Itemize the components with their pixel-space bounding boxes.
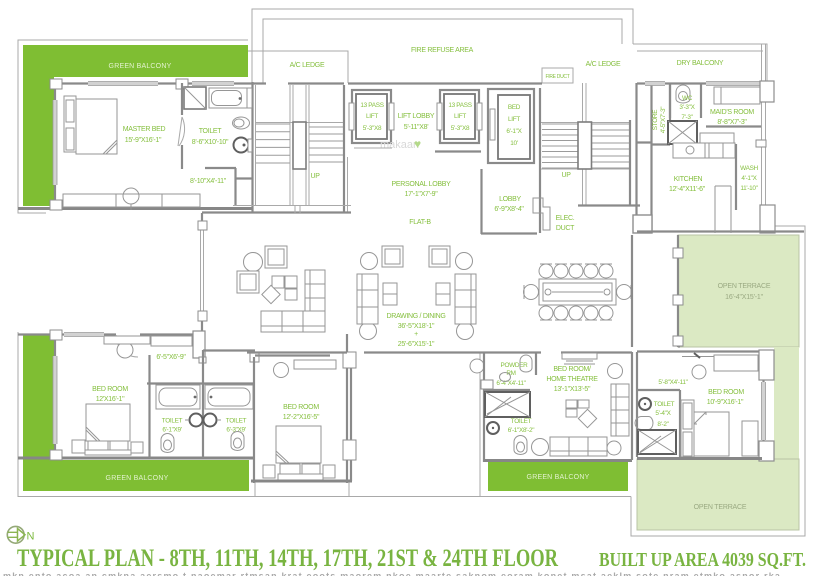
svg-text:8'-10"X4'-11": 8'-10"X4'-11" — [190, 178, 227, 185]
svg-text:PERSONAL LOBBY: PERSONAL LOBBY — [392, 181, 452, 188]
svg-text:FIRE REFUSE AREA: FIRE REFUSE AREA — [411, 47, 474, 54]
svg-text:mkn ento acoa an cmkna aersmo: mkn ento acoa an cmkna aersmo t naoemar … — [3, 571, 781, 576]
svg-text:LIFT: LIFT — [366, 113, 378, 120]
svg-text:10': 10' — [510, 140, 518, 147]
svg-text:WASH: WASH — [740, 165, 758, 172]
svg-text:5'-3"X8: 5'-3"X8 — [451, 125, 470, 132]
svg-text:10'-9"X16'-1": 10'-9"X16'-1" — [707, 399, 744, 406]
svg-text:5'-3"X8: 5'-3"X8 — [363, 125, 382, 132]
svg-text:DRY BALCONY: DRY BALCONY — [677, 60, 724, 67]
svg-text:ELEC.: ELEC. — [556, 215, 575, 222]
svg-text:6'-5"X6'-9": 6'-5"X6'-9" — [156, 354, 186, 361]
svg-text:TOILET: TOILET — [226, 418, 247, 425]
svg-text:BED: BED — [508, 104, 521, 111]
svg-text:5'-4"X: 5'-4"X — [655, 410, 671, 417]
svg-text:LIFT: LIFT — [508, 116, 520, 123]
svg-text:♥: ♥ — [414, 137, 421, 151]
svg-text:8'-2": 8'-2" — [657, 421, 668, 428]
svg-text:TYPICAL PLAN - 8TH, 11TH, 14TH: TYPICAL PLAN - 8TH, 11TH, 14TH, 17TH, 21… — [17, 543, 558, 572]
svg-text:A/C LEDGE: A/C LEDGE — [586, 61, 621, 68]
svg-text:BED ROOM: BED ROOM — [92, 386, 128, 393]
svg-text:36'-5"X18'-1": 36'-5"X18'-1" — [398, 323, 435, 330]
svg-text:LOBBY: LOBBY — [499, 196, 521, 203]
svg-text:13 PASS: 13 PASS — [360, 102, 383, 109]
svg-text:4'-1"X: 4'-1"X — [741, 175, 757, 182]
svg-text:GREEN BALCONY: GREEN BALCONY — [106, 475, 169, 482]
svg-text:TOILET: TOILET — [654, 401, 675, 408]
svg-text:STORE: STORE — [652, 110, 659, 130]
svg-text:LIFT LOBBY: LIFT LOBBY — [398, 113, 435, 120]
svg-text:BED ROOM: BED ROOM — [708, 389, 744, 396]
svg-text:OPEN TERRACE: OPEN TERRACE — [718, 283, 771, 290]
svg-text:5'-11"X8': 5'-11"X8' — [404, 124, 429, 131]
svg-text:BUILT UP AREA 4039 SQ.FT.: BUILT UP AREA 4039 SQ.FT. — [599, 549, 806, 571]
svg-text:TOILET: TOILET — [511, 418, 532, 425]
svg-text:POWDER: POWDER — [501, 362, 529, 369]
svg-text:6'-1"X8'-2": 6'-1"X8'-2" — [508, 427, 534, 434]
svg-text:DRAWING / DINING: DRAWING / DINING — [386, 313, 445, 320]
svg-text:A/C LEDGE: A/C LEDGE — [290, 62, 325, 69]
svg-text:6'-1"X: 6'-1"X — [506, 128, 522, 135]
svg-text:5'-8"X4'-11": 5'-8"X4'-11" — [658, 379, 687, 386]
svg-text:TOILET: TOILET — [162, 418, 183, 425]
svg-text:TOILET: TOILET — [199, 128, 223, 135]
svg-text:MAID'S ROOM: MAID'S ROOM — [710, 109, 754, 116]
svg-text:GREEN BALCONY: GREEN BALCONY — [109, 63, 172, 70]
svg-text:15'-9"X16'-1": 15'-9"X16'-1" — [125, 137, 162, 144]
svg-text:6'-4"X4'-11": 6'-4"X4'-11" — [496, 380, 525, 387]
svg-text:8'-8"X7'-3": 8'-8"X7'-3" — [717, 119, 747, 126]
svg-text:LIFT: LIFT — [454, 113, 466, 120]
svg-text:3'-3"X: 3'-3"X — [679, 104, 695, 111]
svg-text:13 PASS: 13 PASS — [448, 102, 471, 109]
svg-text:12'X16'-1": 12'X16'-1" — [96, 396, 125, 403]
svg-text:12'-2"X16'-5": 12'-2"X16'-5" — [283, 414, 320, 421]
svg-text:6'-9"X8'-4": 6'-9"X8'-4" — [494, 206, 524, 213]
svg-text:16'-4"X15'-1": 16'-4"X15'-1" — [725, 294, 763, 301]
svg-text:7'-3": 7'-3" — [681, 114, 692, 121]
svg-text:6'-1"X9': 6'-1"X9' — [162, 427, 181, 434]
svg-text:13'-1"X13'-5": 13'-1"X13'-5" — [554, 386, 591, 393]
svg-text:DUCT: DUCT — [556, 225, 575, 232]
svg-text:GREEN BALCONY: GREEN BALCONY — [527, 474, 590, 481]
svg-text:17'-1"X7'-9": 17'-1"X7'-9" — [405, 191, 439, 198]
svg-text:UP: UP — [310, 173, 320, 180]
svg-text:6'-3"X9': 6'-3"X9' — [226, 427, 245, 434]
svg-text:4'-5"X7'-3": 4'-5"X7'-3" — [660, 107, 667, 133]
svg-text:OPEN TERRACE: OPEN TERRACE — [694, 504, 747, 511]
svg-text:BED ROOM/: BED ROOM/ — [553, 366, 591, 373]
svg-text:FLAT-B: FLAT-B — [409, 219, 431, 226]
svg-text:8'-6"X10'-10": 8'-6"X10'-10" — [192, 139, 229, 146]
svg-text:FIRE DUCT: FIRE DUCT — [546, 74, 570, 80]
svg-text:12'-4"X11'-6": 12'-4"X11'-6" — [669, 186, 706, 193]
svg-text:BED ROOM: BED ROOM — [283, 404, 319, 411]
svg-text:WC: WC — [682, 95, 693, 102]
svg-text:N: N — [27, 531, 35, 543]
svg-text:MASTER BED: MASTER BED — [123, 126, 166, 133]
svg-text:+: + — [414, 331, 418, 338]
svg-text:HOME THEATRE: HOME THEATRE — [546, 376, 598, 383]
svg-text:KITCHEN: KITCHEN — [674, 176, 703, 183]
svg-text:11'-10": 11'-10" — [740, 185, 757, 192]
svg-text:UP: UP — [561, 172, 571, 179]
svg-text:25'-6"X15'-1": 25'-6"X15'-1" — [398, 341, 435, 348]
